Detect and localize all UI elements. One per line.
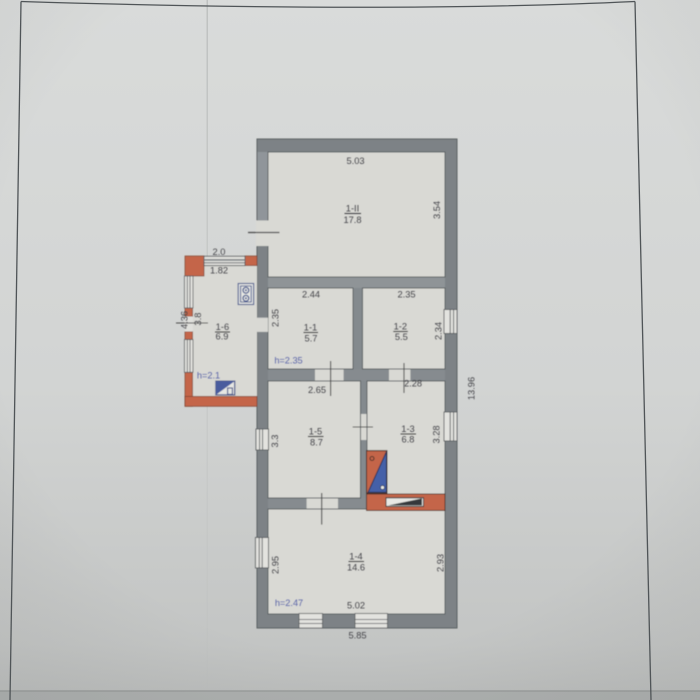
svg-text:h=2.35: h=2.35 [274, 356, 302, 366]
svg-text:2.35: 2.35 [397, 290, 415, 300]
svg-text:4.36: 4.36 [180, 311, 190, 329]
svg-text:1-II: 1-II [346, 204, 359, 214]
svg-text:2.35: 2.35 [271, 309, 281, 327]
svg-text:1-6: 1-6 [216, 322, 229, 332]
svg-text:1.82: 1.82 [210, 266, 228, 276]
svg-text:13.96: 13.96 [467, 377, 477, 400]
svg-text:2.93: 2.93 [436, 554, 446, 572]
svg-text:5.02: 5.02 [347, 601, 365, 611]
svg-text:h=2.1: h=2.1 [197, 371, 220, 381]
svg-text:1-2: 1-2 [394, 322, 407, 332]
svg-text:2.0: 2.0 [213, 247, 226, 257]
svg-text:17.8: 17.8 [343, 215, 361, 225]
svg-text:1-5: 1-5 [309, 427, 322, 437]
svg-text:3.28: 3.28 [432, 425, 442, 443]
svg-text:3.8: 3.8 [193, 313, 203, 326]
svg-text:2.34: 2.34 [434, 322, 444, 340]
svg-text:1-4: 1-4 [349, 552, 362, 562]
svg-text:3.3: 3.3 [270, 435, 280, 448]
svg-text:1-1: 1-1 [304, 323, 317, 333]
svg-text:8.7: 8.7 [310, 438, 323, 448]
svg-text:6.8: 6.8 [402, 435, 415, 445]
svg-text:5.5: 5.5 [395, 332, 408, 342]
svg-text:h=2.47: h=2.47 [275, 598, 303, 608]
svg-text:5.85: 5.85 [348, 631, 366, 641]
svg-text:6.9: 6.9 [216, 332, 229, 342]
svg-text:2.65: 2.65 [308, 385, 326, 395]
svg-text:5.03: 5.03 [346, 156, 364, 166]
svg-text:3.54: 3.54 [432, 201, 442, 219]
svg-text:14.6: 14.6 [347, 563, 365, 573]
svg-text:5.7: 5.7 [305, 334, 318, 344]
svg-text:2.44: 2.44 [302, 290, 320, 300]
svg-text:2.28: 2.28 [404, 379, 422, 389]
svg-text:1-3: 1-3 [401, 424, 414, 434]
svg-text:2.95: 2.95 [270, 556, 280, 574]
